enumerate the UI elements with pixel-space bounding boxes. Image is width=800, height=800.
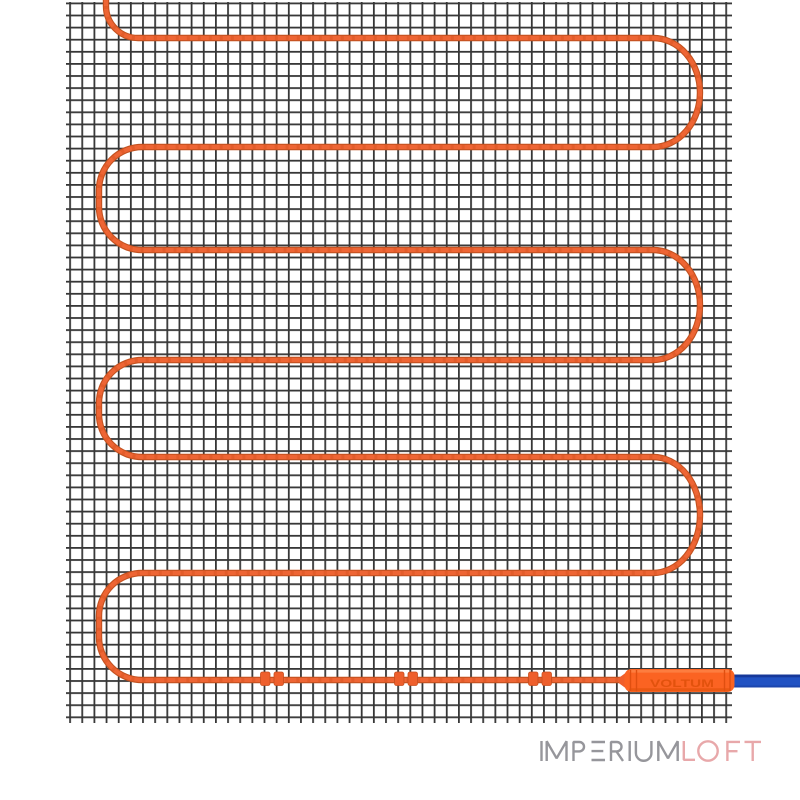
svg-text:VOLTUM: VOLTUM [650,678,714,690]
